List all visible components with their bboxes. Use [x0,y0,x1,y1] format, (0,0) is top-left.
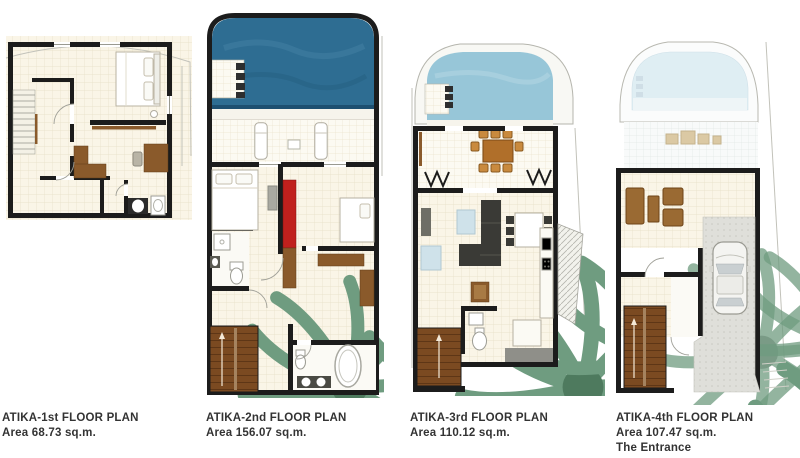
entry-hall [671,277,698,337]
plan-1st-floor [4,26,194,224]
caption-4th-floor: ATIKA-4th FLOOR PLAN Area 107.47 sq.m. T… [616,411,753,456]
floor-mat [421,246,441,270]
pool-steps [425,84,453,114]
plan-title: ATIKA-1st FLOOR PLAN [2,411,139,426]
kitchen-mat [505,348,553,362]
plan-title: ATIKA-3rd FLOOR PLAN [410,411,548,426]
sun-lounger [255,123,267,159]
floor-plans-sheet: ATIKA-1st FLOOR PLAN Area 68.73 sq.m. AT… [0,0,800,458]
bed [212,170,258,230]
plan-title: ATIKA-4th FLOOR PLAN [616,411,753,426]
balcony-hatched [558,224,583,324]
plan-4th-floor [608,30,800,405]
hob [542,258,551,270]
kitchen-sink [542,238,551,250]
kitchen-counter [513,320,541,346]
plan-area: Area 68.73 sq.m. [2,426,139,441]
staircase [417,328,461,386]
plan-2nd-floor-drawing [202,6,384,398]
sun-lounger [315,123,327,159]
plan-note: The Entrance [616,441,753,456]
bathroom-left [210,232,249,286]
plan-area: Area 110.12 sq.m. [410,426,548,441]
side-table [151,111,158,118]
plan-title: ATIKA-2nd FLOOR PLAN [206,411,347,426]
bathroom-main [293,345,376,390]
staircase [624,306,666,388]
floor-mat [457,210,475,234]
swimming-pool [632,52,748,110]
pool-steps [212,60,245,98]
shelf-counter [92,126,156,130]
dresser [268,186,277,210]
plan-1st-floor-drawing [4,26,194,224]
sink [469,313,483,325]
staircase [210,326,258,392]
plan-4th-floor-drawing [608,30,800,405]
garage-driveway [694,217,760,392]
wardrobe-red [283,180,296,248]
car [709,242,751,314]
plan-2nd-floor [202,6,384,398]
staircase [13,90,38,154]
tv-cabinet [421,208,431,236]
caption-3rd-floor: ATIKA-3rd FLOOR PLAN Area 110.12 sq.m. [410,411,548,441]
plan-area: Area 156.07 sq.m. [206,426,347,441]
shower [214,234,230,250]
desk [318,254,364,266]
pool-deck [212,109,374,120]
plan-3rd-floor-drawing [405,28,605,396]
caption-1st-floor: ATIKA-1st FLOOR PLAN Area 68.73 sq.m. [2,411,139,441]
plan-area: Area 107.47 sq.m. [616,426,753,441]
caption-2nd-floor: ATIKA-2nd FLOOR PLAN Area 156.07 sq.m. [206,411,347,441]
plan-3rd-floor [405,28,605,396]
bathroom [128,196,165,215]
bed [116,52,160,106]
toilet [473,332,487,350]
side-table [288,140,300,149]
desk [360,270,374,306]
armchair [471,282,489,302]
toilet [132,200,144,213]
cabinet [283,248,296,288]
